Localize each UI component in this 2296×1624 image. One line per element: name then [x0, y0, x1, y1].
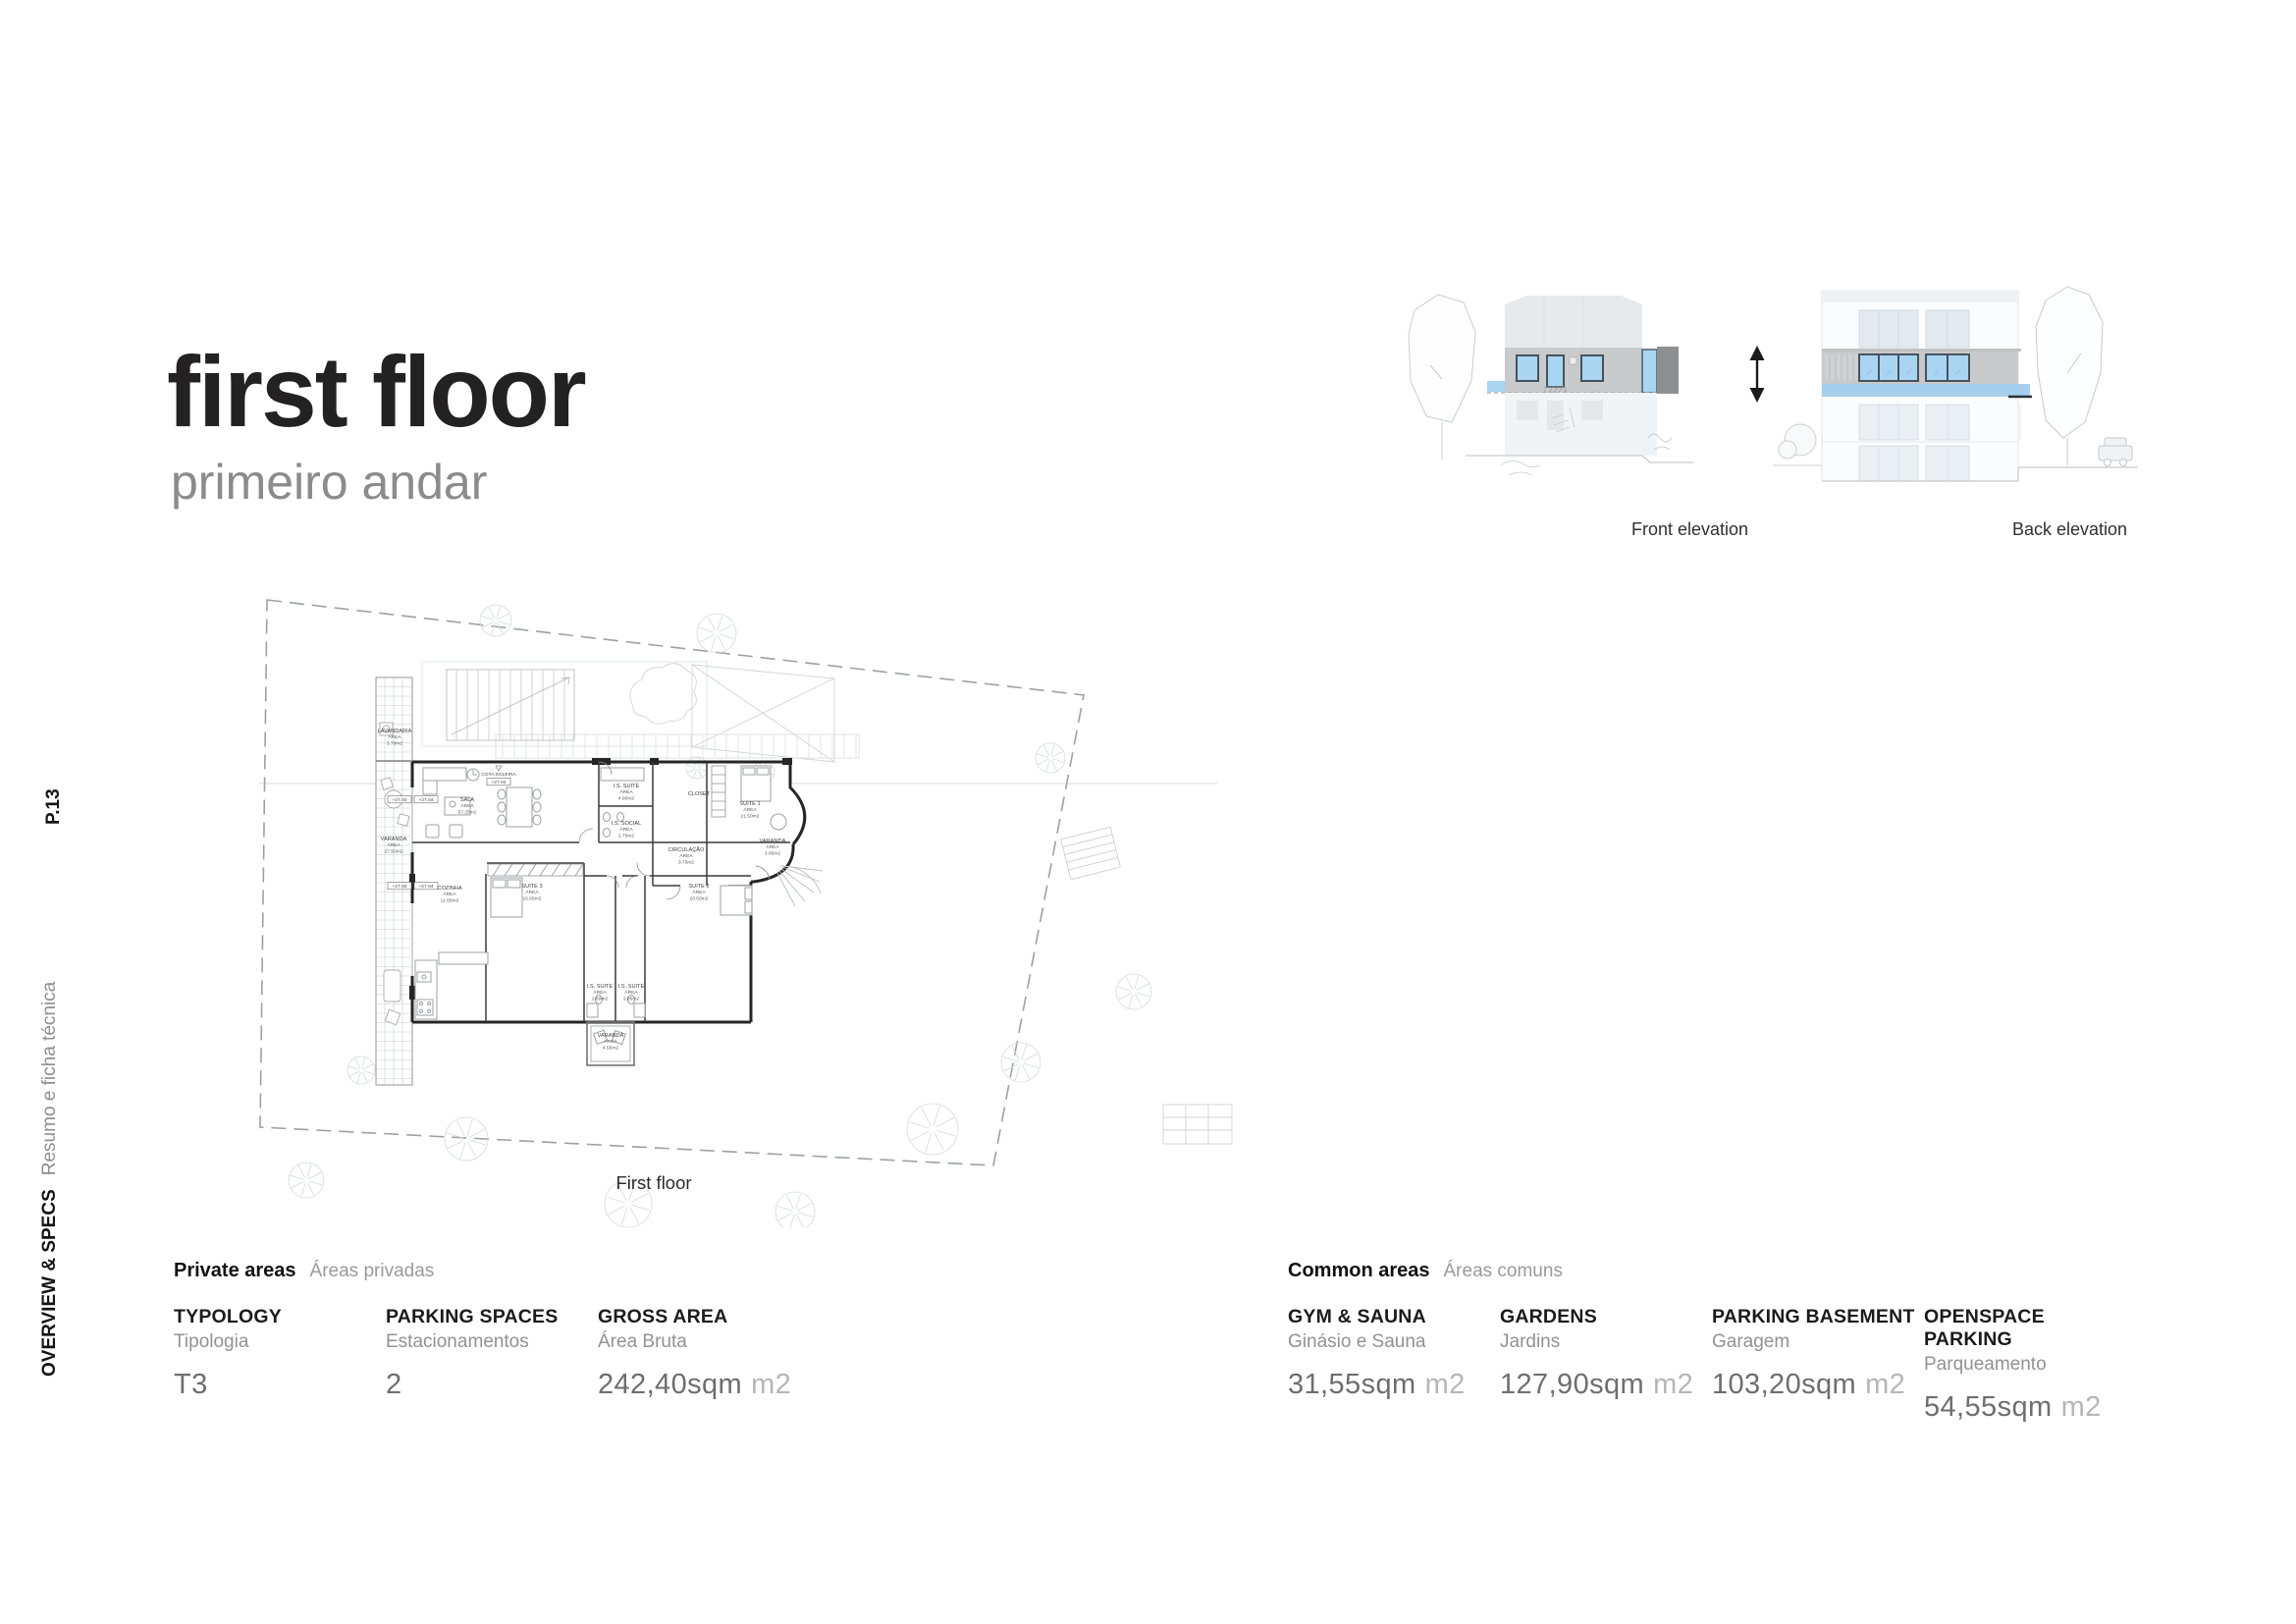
- spec-parking-label-pt: Estacionamentos: [386, 1331, 598, 1353]
- svg-text:COTA SOLEIRA: COTA SOLEIRA: [481, 772, 516, 778]
- room-label: 15.65m2: [522, 895, 541, 901]
- spec-gross-area-value: 242,40sqmm2: [598, 1369, 810, 1401]
- room-label: ÁREA: [619, 788, 633, 795]
- room-label: 3.85m2: [765, 850, 781, 856]
- spec-gym-value: 31,55sqmm2: [1288, 1369, 1500, 1401]
- private-areas-header-en: Private areas: [174, 1260, 296, 1282]
- back-elevation-drawing: [1773, 283, 2146, 491]
- room-label: LAVANDARIA: [378, 729, 412, 734]
- spec-gardens-label-pt: Jardins: [1500, 1331, 1712, 1353]
- room-label: ÁREA: [525, 889, 539, 895]
- room-label: ÁREA: [766, 843, 779, 850]
- spec-openspace-value: 54,55sqmm2: [1924, 1391, 2136, 1424]
- room-label: I.S. SUITE: [587, 984, 614, 990]
- back-elevation-label: Back elevation: [2012, 519, 2127, 540]
- front-tree-icon: [1409, 295, 1475, 460]
- spec-openspace-label-en: OPENSPACE PARKING: [1924, 1306, 2136, 1351]
- common-areas-items: GYM & SAUNA Ginásio e Sauna 31,55sqmm2 G…: [1288, 1306, 2136, 1424]
- spec-parking-basement-label-pt: Garagem: [1712, 1331, 1924, 1353]
- floor-plan: COTA SOLEIRA+27.60+27.04+27.60+27.04+27.…: [245, 579, 1247, 1227]
- room-label: 4.90m2: [618, 795, 635, 801]
- level-marker: +27.04: [418, 884, 433, 890]
- room-label: ÁREA: [604, 1038, 617, 1045]
- spec-parking-basement-label-en: PARKING BASEMENT: [1712, 1306, 1924, 1328]
- room-label: ÁREA: [692, 889, 706, 895]
- room-label: I.S. SUITE: [614, 784, 640, 789]
- level-marker: +27.04: [418, 797, 433, 803]
- spec-typology-label-pt: Tipologia: [174, 1331, 386, 1353]
- room-label: 2.75m2: [618, 833, 635, 839]
- spec-gardens-label-en: GARDENS: [1500, 1306, 1712, 1328]
- room-label: ÁREA: [619, 826, 633, 833]
- spec-parking-value: 2: [386, 1369, 598, 1401]
- level-marker: +27.60: [392, 797, 406, 803]
- spec-parking-basement-value: 103,20sqmm2: [1712, 1369, 1924, 1401]
- room-label: ÁREA: [679, 852, 693, 859]
- spec-gym-label-pt: Ginásio e Sauna: [1288, 1331, 1500, 1353]
- garden-trees: [289, 605, 1151, 1227]
- front-lower-floor: [1505, 393, 1657, 456]
- room-label: ÁREA: [443, 891, 456, 897]
- spec-gardens-value: 127,90sqmm2: [1500, 1369, 1712, 1401]
- room-label: CLOSET: [688, 791, 711, 797]
- spec-parking-basement: PARKING BASEMENT Garagem 103,20sqmm2: [1712, 1306, 1924, 1424]
- section-label-en: OVERVIEW & SPECS: [39, 1189, 60, 1377]
- room-label: 3.75m2: [678, 859, 695, 865]
- brochure-page: first floor primeiro andar P.13 OVERVIEW…: [0, 0, 2296, 1624]
- room-label: VARANDA: [381, 837, 407, 842]
- room-label: ÁREA: [387, 841, 400, 848]
- room-label: ÁREA: [593, 989, 607, 996]
- section-label: OVERVIEW & SPECSResumo e ficha técnica: [39, 982, 61, 1377]
- room-label: 2.85m2: [623, 996, 640, 1001]
- room-label: ÁREA: [460, 802, 474, 809]
- room-label: SUITE 2: [688, 884, 709, 890]
- front-highlight-floor: [1487, 347, 1679, 394]
- spec-typology: TYPOLOGY Tipologia T3: [174, 1306, 386, 1401]
- spec-parking-label-en: PARKING SPACES: [386, 1306, 598, 1328]
- private-areas-header: Private areas Áreas privadas: [174, 1260, 810, 1282]
- spec-parking-spaces: PARKING SPACES Estacionamentos 2: [386, 1306, 598, 1401]
- room-label: 21.50m2: [740, 813, 759, 819]
- room-label: I.S. SOCIAL: [612, 821, 641, 827]
- back-highlight-floor: [1822, 349, 2032, 397]
- room-label: SUITE 1: [739, 801, 760, 807]
- private-areas-header-pt: Áreas privadas: [310, 1261, 435, 1282]
- private-areas-items: TYPOLOGY Tipologia T3 PARKING SPACES Est…: [174, 1306, 810, 1401]
- room-label: 11.65m2: [441, 897, 459, 903]
- room-label: 57.25m2: [457, 809, 476, 815]
- spec-gym-sauna: GYM & SAUNA Ginásio e Sauna 31,55sqmm2: [1288, 1306, 1500, 1424]
- room-label: COZINHA: [437, 886, 461, 892]
- front-upper-floor: [1505, 296, 1642, 348]
- spec-gross-area-label-pt: Área Bruta: [598, 1331, 810, 1353]
- page-title: first floor: [167, 342, 585, 442]
- level-marker: +27.04: [491, 780, 506, 785]
- front-elevation-drawing: [1407, 291, 1701, 487]
- room-label: VARANDA: [598, 1033, 624, 1039]
- car-icon: [2099, 438, 2132, 466]
- spec-typology-value: T3: [174, 1369, 386, 1401]
- spec-openspace-parking: OPENSPACE PARKING Parqueamento 54,55sqmm…: [1924, 1306, 2136, 1424]
- room-label: ÁREA: [624, 989, 638, 996]
- floor-plan-drawing: COTA SOLEIRA+27.60+27.04+27.60+27.04+27.…: [245, 579, 1247, 1227]
- room-label: I.S. SUITE: [618, 984, 645, 990]
- private-areas-specs: Private areas Áreas privadas TYPOLOGY Ti…: [174, 1260, 810, 1401]
- room-label: CIRCULAÇÃO: [668, 846, 705, 853]
- page-number: P.13: [43, 788, 65, 825]
- back-tree-icon: [2036, 287, 2103, 465]
- front-elevation-label: Front elevation: [1631, 519, 1748, 540]
- spec-typology-label-en: TYPOLOGY: [174, 1306, 386, 1328]
- common-areas-specs: Common areas Áreas comuns GYM & SAUNA Gi…: [1288, 1260, 2136, 1424]
- curved-stair: [756, 866, 823, 906]
- double-arrow-icon: [1744, 345, 1770, 404]
- plan-caption: First floor: [550, 1172, 758, 1194]
- common-areas-header-en: Common areas: [1288, 1260, 1430, 1282]
- room-label: ÁREA: [388, 733, 401, 740]
- spec-gross-area-label-en: GROSS AREA: [598, 1306, 810, 1328]
- room-label: SALA: [460, 797, 475, 803]
- common-areas-header-pt: Áreas comuns: [1444, 1261, 1563, 1282]
- spec-gardens: GARDENS Jardins 127,90sqmm2: [1500, 1306, 1712, 1424]
- room-label: 27.50m2: [384, 848, 402, 854]
- spec-gym-label-en: GYM & SAUNA: [1288, 1306, 1500, 1328]
- common-areas-header: Common areas Áreas comuns: [1288, 1260, 2136, 1282]
- section-label-pt: Resumo e ficha técnica: [39, 982, 60, 1176]
- page-subtitle: primeiro andar: [171, 458, 487, 507]
- room-label: 3.79m2: [387, 740, 403, 746]
- room-label: SUITE 3: [521, 884, 542, 890]
- spec-openspace-label-pt: Parqueamento: [1924, 1354, 2136, 1376]
- room-label: 4.55m2: [603, 1045, 619, 1051]
- spec-gross-area: GROSS AREA Área Bruta 242,40sqmm2: [598, 1306, 810, 1401]
- room-label: VARANDA: [760, 839, 786, 844]
- room-label: ÁREA: [743, 806, 757, 813]
- room-label: 20.50m2: [689, 895, 708, 901]
- level-marker: +27.60: [392, 884, 406, 890]
- stairs: [447, 670, 574, 740]
- room-label: 2.60m2: [592, 996, 609, 1001]
